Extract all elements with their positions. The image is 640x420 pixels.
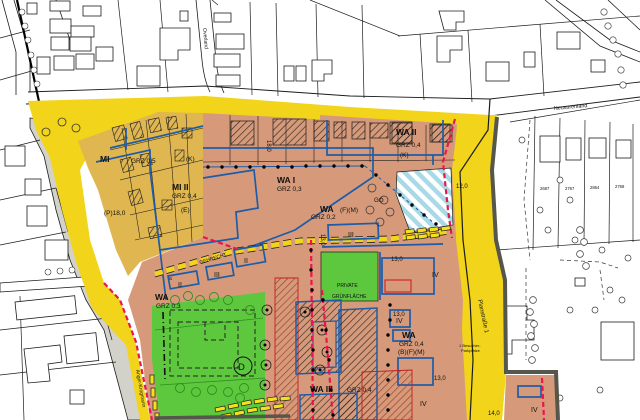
svg-text:IV: IV [531, 407, 538, 414]
svg-text:GRZ 0,4: GRZ 0,4 [396, 142, 421, 149]
svg-text:GRZ 0,3: GRZ 0,3 [156, 303, 181, 310]
svg-text:II: II [178, 282, 182, 289]
svg-text:2687: 2687 [540, 186, 550, 191]
svg-text:(B)(F)(M): (B)(F)(M) [398, 349, 425, 356]
svg-text:13,0: 13,0 [319, 234, 325, 246]
svg-text:GRZ 0,2: GRZ 0,2 [311, 214, 336, 221]
svg-text:GRZ 0,4: GRZ 0,4 [399, 341, 424, 348]
svg-text:(F)(M): (F)(M) [340, 207, 358, 214]
svg-text:GRZ 0,3: GRZ 0,3 [277, 186, 302, 193]
svg-text:13,0: 13,0 [393, 312, 405, 318]
svg-text:G: G [374, 198, 379, 204]
svg-text:(K): (K) [186, 156, 195, 163]
svg-text:III: III [214, 272, 220, 279]
svg-text:D: D [238, 362, 245, 373]
svg-text:PRIVATE: PRIVATE [337, 283, 358, 289]
svg-text:II: II [244, 258, 248, 265]
svg-text:III: III [348, 232, 354, 239]
svg-text:Parkplätze: Parkplätze [461, 348, 481, 353]
svg-text:GRÜNFLÄCHE: GRÜNFLÄCHE [332, 293, 367, 300]
svg-text:18,0: 18,0 [265, 140, 271, 152]
svg-text:GRZ 0,4: GRZ 0,4 [172, 193, 197, 200]
svg-text:(P)18,0: (P)18,0 [104, 210, 126, 217]
svg-text:(K): (K) [400, 152, 409, 159]
svg-text:IV: IV [432, 272, 439, 279]
svg-text:a: a [169, 276, 172, 282]
svg-text:13,0: 13,0 [391, 257, 403, 263]
svg-text:MI II: MI II [172, 182, 189, 192]
svg-text:WA I: WA I [277, 175, 295, 185]
svg-text:12,0: 12,0 [456, 184, 468, 190]
svg-text:WA: WA [402, 330, 416, 340]
svg-text:2767: 2767 [565, 186, 575, 191]
svg-text:IV: IV [396, 318, 403, 325]
svg-text:2768: 2768 [615, 184, 625, 189]
svg-text:WA III: WA III [310, 384, 333, 394]
svg-text:WA II: WA II [396, 127, 416, 137]
svg-text:2864: 2864 [590, 185, 600, 190]
svg-text:GRZ 0,5: GRZ 0,5 [131, 158, 156, 165]
svg-text:WA: WA [320, 204, 334, 214]
svg-text:WA: WA [155, 292, 169, 302]
svg-text:14,0: 14,0 [488, 411, 500, 417]
svg-text:MI: MI [100, 154, 109, 164]
svg-text:(E): (E) [181, 207, 190, 214]
svg-text:GRZ 0,4: GRZ 0,4 [347, 387, 372, 394]
svg-text:13,0: 13,0 [434, 376, 446, 382]
svg-text:IV: IV [420, 401, 427, 408]
